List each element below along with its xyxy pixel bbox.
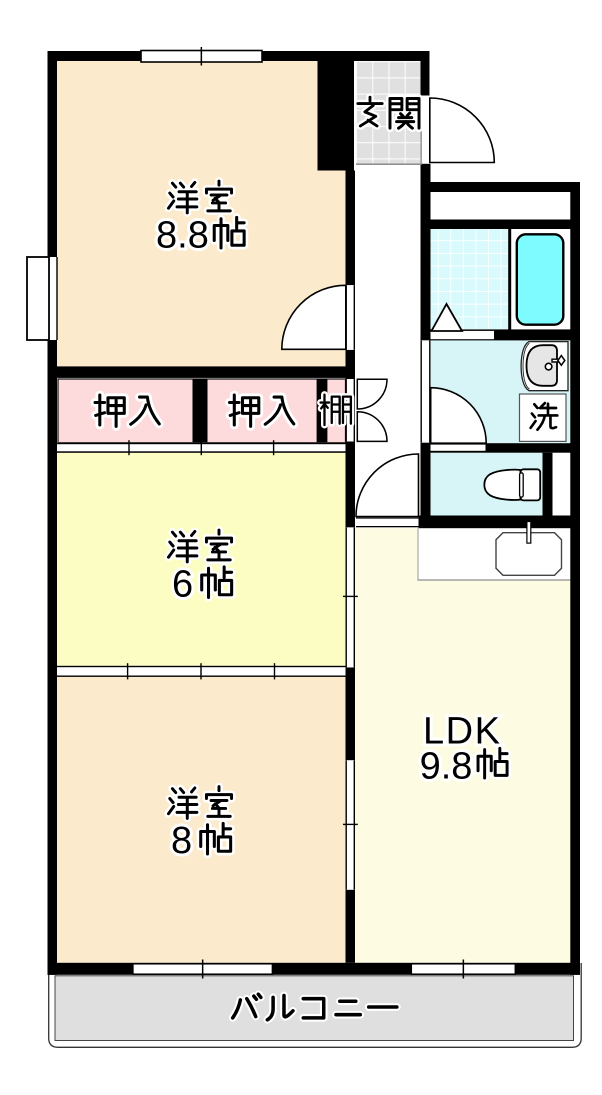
svg-text:8.8: 8.8 — [156, 215, 209, 257]
svg-text:8: 8 — [171, 820, 192, 862]
svg-text:6: 6 — [172, 564, 193, 606]
svg-text:9.8: 9.8 — [420, 745, 473, 787]
